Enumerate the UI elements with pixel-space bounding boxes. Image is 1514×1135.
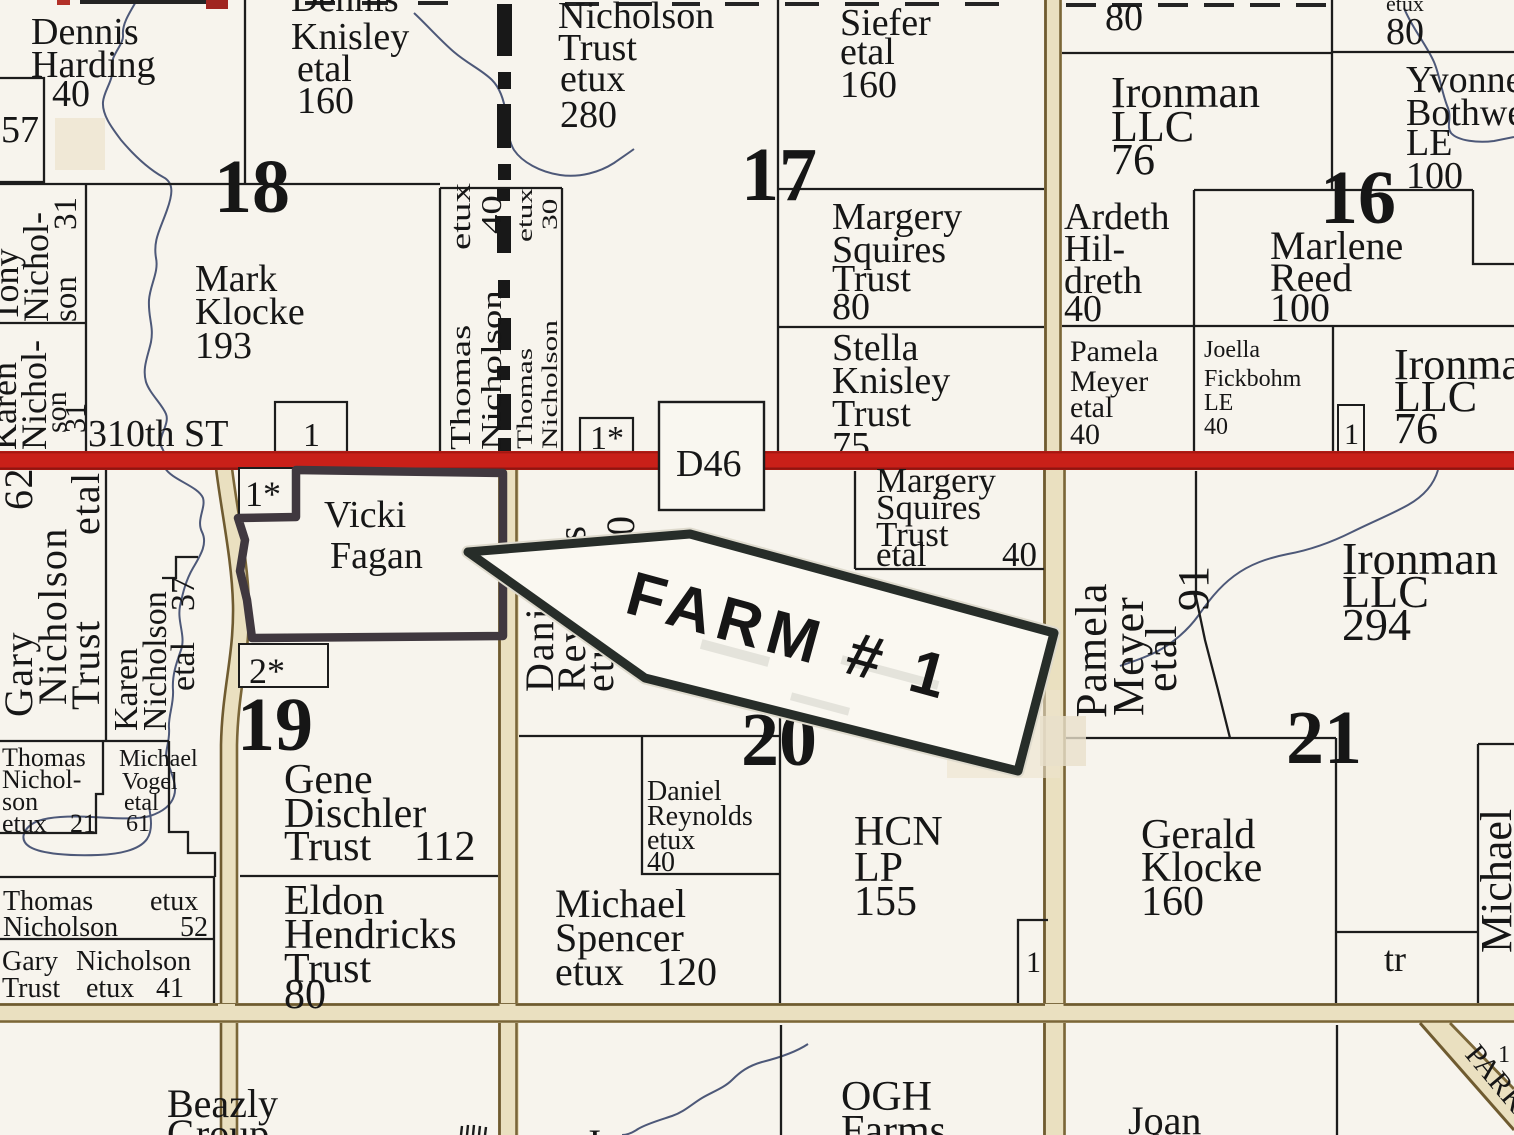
svg-text:52: 52	[180, 912, 208, 943]
svg-text:40: 40	[1064, 288, 1102, 330]
svg-text:40: 40	[1070, 418, 1100, 451]
svg-text:80: 80	[1386, 11, 1424, 53]
svg-text:Trust: Trust	[284, 824, 372, 870]
svg-text:61: 61	[126, 811, 150, 837]
svg-text:40: 40	[1204, 414, 1228, 440]
svg-text:40: 40	[477, 195, 508, 234]
svg-text:1: 1	[303, 417, 320, 454]
svg-text:120: 120	[657, 949, 717, 994]
svg-text:Trust: Trust	[63, 619, 108, 710]
svg-text:40: 40	[1002, 535, 1037, 574]
svg-text:Thomas: Thomas	[1128, 1126, 1257, 1135]
svg-text:Fagan: Fagan	[330, 535, 423, 577]
svg-text:294: 294	[1342, 599, 1411, 650]
svg-text:Nicholson: Nicholson	[3, 912, 118, 943]
svg-text:LE: LE	[1204, 390, 1233, 416]
svg-text:193: 193	[195, 325, 252, 367]
svg-text:Thomas: Thomas	[446, 325, 477, 450]
svg-text:1: 1	[1498, 1042, 1510, 1068]
svg-text:76: 76	[1394, 404, 1438, 453]
svg-text:100: 100	[1270, 285, 1330, 330]
svg-text:41: 41	[156, 973, 184, 1004]
svg-text:Nicholson: Nicholson	[477, 290, 508, 450]
svg-text:18: 18	[214, 145, 290, 229]
svg-text:1: 1	[1344, 418, 1359, 451]
svg-text:160: 160	[1141, 879, 1204, 925]
svg-text:etux: etux	[512, 188, 537, 242]
svg-text:80: 80	[832, 286, 870, 328]
svg-text:100: 100	[1406, 155, 1463, 197]
svg-text:Michael: Michael	[1472, 809, 1514, 953]
svg-text:80: 80	[284, 972, 326, 1018]
svg-text:son: son	[48, 276, 84, 322]
svg-text:Farms: Farms	[841, 1108, 946, 1135]
svg-text:1: 1	[1026, 946, 1041, 979]
svg-text:etal: etal	[876, 535, 927, 574]
svg-text:etux: etux	[446, 183, 477, 250]
svg-text:80: 80	[1105, 0, 1143, 39]
svg-text:etal: etal	[63, 471, 108, 535]
svg-text:21: 21	[70, 809, 96, 838]
svg-text:310th ST: 310th ST	[88, 413, 228, 455]
svg-text:160: 160	[840, 64, 897, 106]
svg-text:etux: etux	[555, 949, 624, 994]
svg-text:160: 160	[297, 80, 354, 122]
svg-text:40: 40	[647, 847, 675, 878]
svg-text:Pamela: Pamela	[1070, 335, 1158, 368]
svg-text:Trust: Trust	[2, 973, 60, 1004]
svg-text:James: James	[585, 1121, 683, 1135]
svg-text:etux: etux	[86, 973, 134, 1004]
svg-text:19: 19	[237, 683, 313, 767]
svg-text:37: 37	[165, 577, 202, 611]
svg-text:57: 57	[1, 109, 39, 151]
svg-text:1*: 1*	[245, 474, 281, 514]
svg-text:Fickbohm: Fickbohm	[1204, 366, 1302, 392]
svg-text:40: 40	[52, 73, 90, 115]
svg-text:155: 155	[854, 879, 917, 925]
svg-text:Nicholson: Nicholson	[537, 320, 562, 449]
svg-text:91: 91	[1169, 565, 1218, 611]
svg-text:31: 31	[48, 197, 84, 230]
svg-text:D46: D46	[676, 443, 741, 485]
svg-text:etal: etal	[165, 642, 202, 691]
svg-text:Vicki: Vicki	[324, 494, 406, 536]
svg-text:62: 62	[0, 467, 41, 510]
svg-text:280: 280	[560, 94, 617, 136]
svg-text:Harding: Harding	[31, 44, 156, 86]
svg-text:17: 17	[741, 133, 817, 217]
svg-text:21: 21	[1286, 696, 1362, 780]
svg-text:Thomas: Thomas	[512, 348, 537, 449]
svg-text:76: 76	[1111, 135, 1155, 184]
svg-text:112: 112	[414, 824, 475, 870]
svg-text:etux: etux	[2, 809, 47, 838]
svg-text:tr: tr	[1384, 939, 1406, 979]
svg-text:Joella: Joella	[1204, 337, 1260, 363]
svg-text:30: 30	[537, 199, 562, 230]
svg-text:etal: etal	[1137, 624, 1186, 692]
svg-text:2*: 2*	[249, 651, 285, 691]
svg-text:Group: Group	[167, 1111, 269, 1135]
